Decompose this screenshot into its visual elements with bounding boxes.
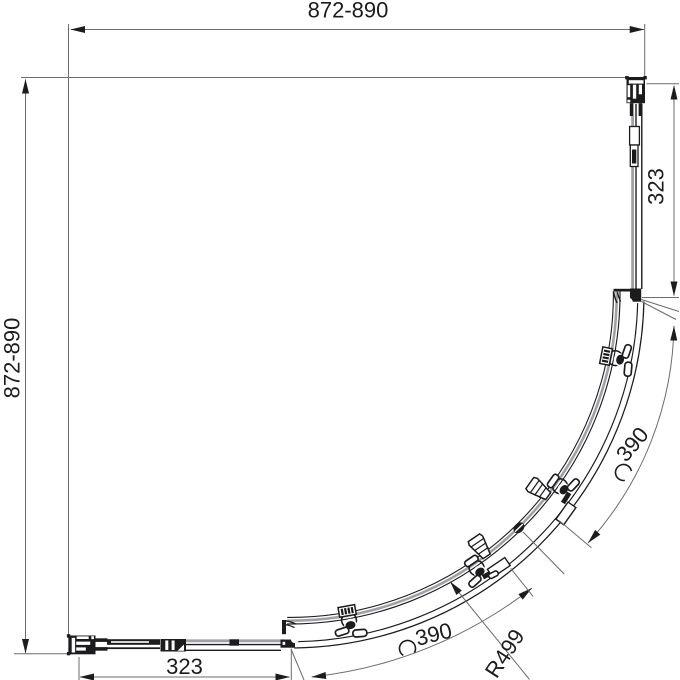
svg-text:323: 323 [166, 654, 203, 679]
svg-text:872-890: 872-890 [308, 0, 389, 23]
svg-text:872-890: 872-890 [0, 318, 25, 399]
svg-text:323: 323 [644, 168, 669, 205]
